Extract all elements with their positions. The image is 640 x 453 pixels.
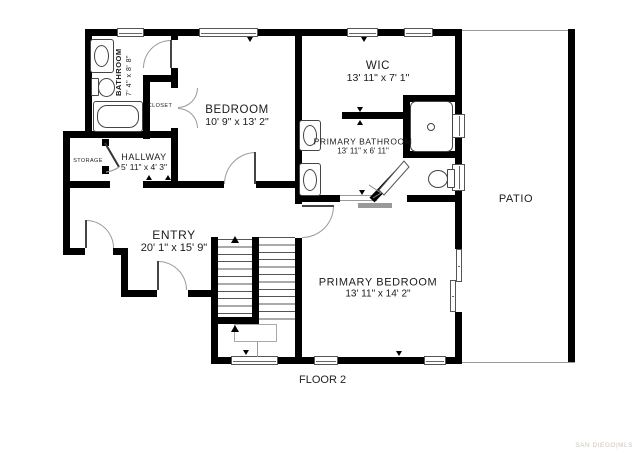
wall-segment <box>455 137 462 165</box>
window <box>199 28 258 37</box>
wall-segment <box>252 237 259 323</box>
room-label-bedroom: BEDROOM 10' 9" x 13' 2" <box>205 104 269 128</box>
marker-arrow-icon <box>396 351 402 356</box>
room-dims: 13' 11" x 14' 2" <box>319 289 438 300</box>
stairs-up-arrow-icon <box>231 325 239 332</box>
door-leaf-angled <box>379 161 409 195</box>
marker-arrow-icon <box>359 190 365 195</box>
room-dims-bathroom: 7' 4" x 8' 8" <box>126 38 133 96</box>
wall-segment <box>302 195 340 202</box>
room-label-closet: CLOSET <box>148 103 172 109</box>
floor-caption: FLOOR 2 <box>299 374 346 386</box>
room-label-entry: ENTRY 20' 1" x 15' 9" <box>141 228 207 254</box>
wall-segment <box>171 128 178 139</box>
room-dims: 13' 11" x 7' 1" <box>347 72 410 84</box>
door-arc <box>224 152 256 184</box>
window <box>231 356 278 365</box>
stairs-up-arrow-icon <box>231 236 239 243</box>
window <box>347 28 378 37</box>
bathroom-sink <box>94 45 109 67</box>
wall-segment <box>455 191 462 249</box>
room-dims: 10' 9" x 13' 2" <box>205 116 269 128</box>
wall-segment <box>257 29 348 36</box>
door-leaf <box>254 152 256 184</box>
room-dims: 5' 11" x 4' 3" <box>121 162 167 172</box>
wall-stub <box>102 166 109 174</box>
floor-plan: BATHROOM 7' 4" x 8' 8" CLOSET STORAGE BE… <box>0 0 640 453</box>
wall-segment <box>63 131 70 255</box>
wall-segment <box>568 29 575 362</box>
door-arc <box>178 108 198 128</box>
room-name: PRIMARY BATHROOM <box>314 137 413 147</box>
room-label-primary-bedroom: PRIMARY BEDROOM 13' 11" x 14' 2" <box>319 277 438 300</box>
toilet-bowl <box>98 78 115 97</box>
door-leaf <box>157 261 159 290</box>
room-label-storage: STORAGE <box>73 158 103 164</box>
watermark: SAN DIEGO|MLS <box>575 442 633 449</box>
wall-segment <box>295 238 302 364</box>
pocket-door-panel <box>358 203 392 208</box>
window <box>314 356 338 365</box>
toilet-bowl <box>428 170 448 188</box>
marker-arrow-icon <box>146 175 152 180</box>
door-arc <box>302 206 334 238</box>
room-name: ENTRY <box>141 228 207 242</box>
door-arc <box>86 220 114 248</box>
marker-arrow-icon <box>243 350 249 355</box>
wall-segment <box>171 139 178 188</box>
door-leaf <box>85 220 87 248</box>
bathtub-basin <box>97 105 139 128</box>
room-name: WIC <box>347 60 410 72</box>
room-dims: 13' 11" x 6' 11" <box>314 147 413 156</box>
window <box>424 356 446 365</box>
door-leaf <box>302 205 334 207</box>
vanity-sink <box>303 169 317 191</box>
wall-segment <box>342 112 403 119</box>
wall-segment <box>211 237 218 364</box>
wall-segment <box>143 181 224 188</box>
sliding-door-panel <box>456 249 462 282</box>
wall-segment <box>63 181 110 188</box>
marker-arrow-icon <box>357 120 363 125</box>
wall-segment <box>63 131 178 138</box>
wall-segment <box>171 29 178 40</box>
understair-outline <box>234 324 277 342</box>
stair-treads <box>259 237 295 326</box>
wall-segment <box>121 290 157 297</box>
window <box>117 28 144 37</box>
room-name: BEDROOM <box>205 104 269 116</box>
stair-treads <box>218 239 252 319</box>
room-name: HALLWAY <box>121 152 167 162</box>
door-leaf-angled <box>105 143 119 167</box>
door-leaf <box>170 40 172 68</box>
sliding-door-panel <box>450 280 456 312</box>
wall-segment <box>455 29 462 115</box>
wall-segment <box>407 195 462 202</box>
door-arc <box>143 40 171 68</box>
patio-edge-line <box>462 30 568 31</box>
marker-arrow-icon <box>361 37 367 42</box>
toilet-tank <box>447 169 455 188</box>
pocket-door-track <box>340 200 377 201</box>
understair-line <box>257 342 258 357</box>
marker-arrow-icon <box>247 37 253 42</box>
room-name: PATIO <box>499 193 533 205</box>
diagonal-wall <box>372 164 406 200</box>
room-label-patio: PATIO <box>499 193 533 205</box>
window <box>404 28 433 37</box>
patio-edge-line <box>462 362 575 363</box>
room-label-primary-bathroom: PRIMARY BATHROOM 13' 11" x 6' 11" <box>314 137 413 156</box>
room-dims: 20' 1" x 15' 9" <box>141 242 207 254</box>
room-label-wic: WIC 13' 11" x 7' 1" <box>347 60 410 84</box>
marker-arrow-icon <box>165 175 171 180</box>
door-arc <box>158 261 187 290</box>
room-label-hallway: HALLWAY 5' 11" x 4' 3" <box>121 152 167 172</box>
marker-arrow-icon <box>357 107 363 112</box>
wall-segment <box>256 181 302 188</box>
door-arc <box>178 88 198 108</box>
shower-drain <box>427 123 435 131</box>
window <box>452 114 465 138</box>
wall-segment <box>63 248 85 255</box>
room-label-bathroom: BATHROOM <box>114 38 123 96</box>
wall-segment <box>188 290 212 297</box>
door-swing-fan <box>369 185 381 198</box>
wall-stub <box>102 139 109 146</box>
room-name: PRIMARY BEDROOM <box>319 277 438 289</box>
pocket-door-track <box>340 195 377 196</box>
wall-segment <box>378 29 405 36</box>
